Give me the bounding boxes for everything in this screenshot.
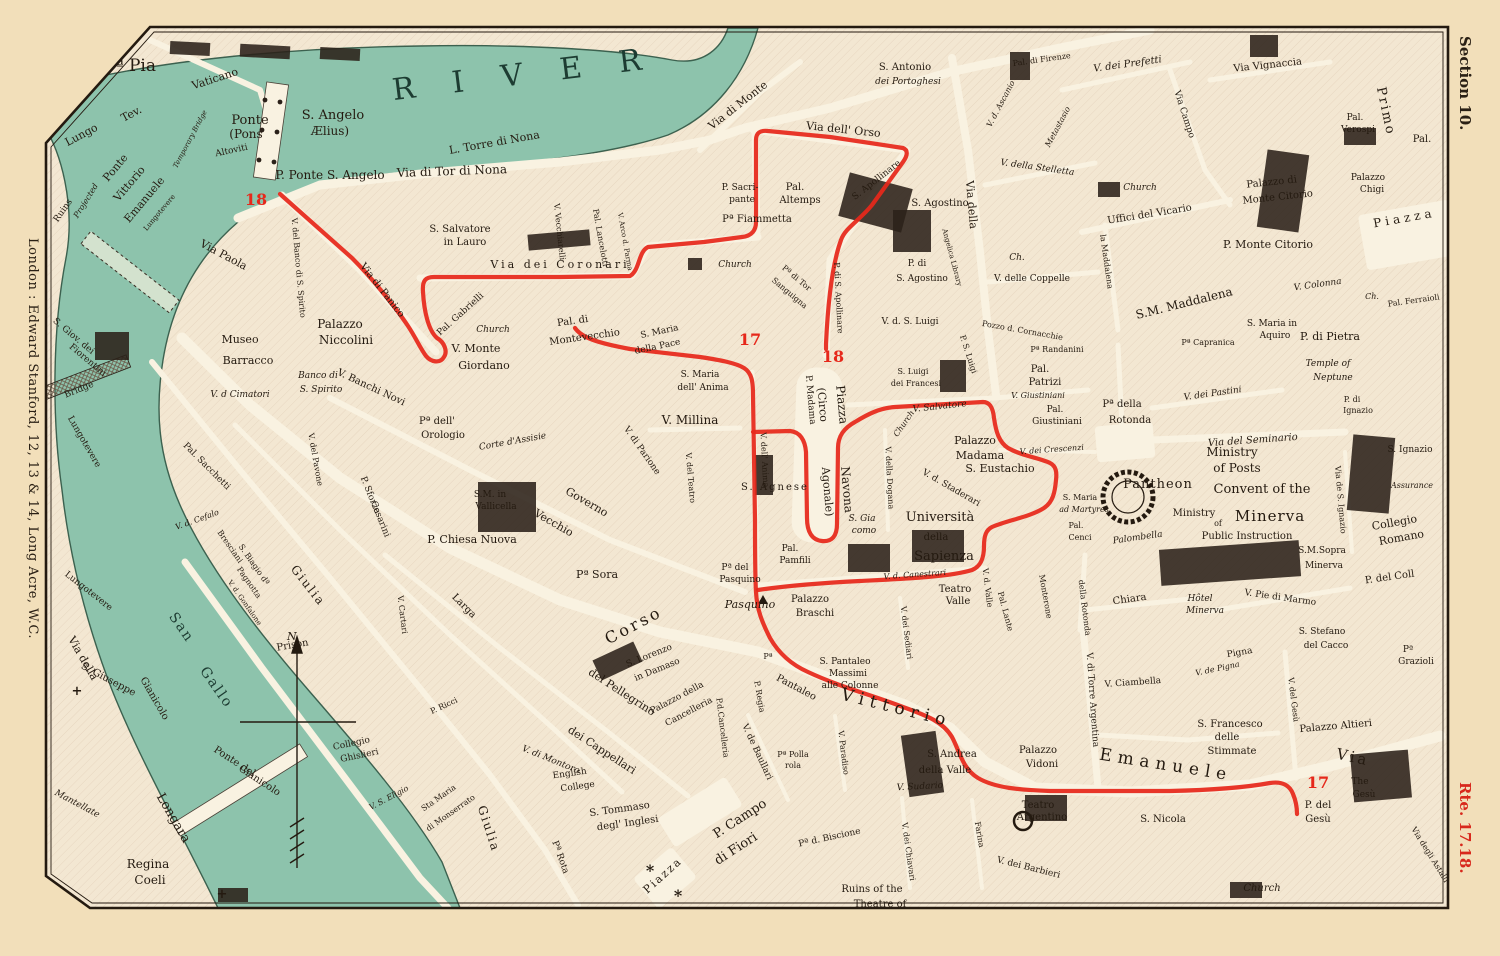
map-label: Ignazio — [1343, 406, 1373, 415]
map-label: Sapienza — [914, 549, 974, 564]
map-label: Banco di — [297, 371, 338, 381]
map-label: P. Sacri- — [722, 183, 759, 193]
map-label: Hôtel — [1186, 593, 1212, 604]
map-label: Ælius) — [310, 124, 349, 138]
map-label: Grazioli — [1398, 657, 1434, 667]
map-label: Ch. — [1365, 292, 1379, 301]
map-label: Patrizi — [1029, 377, 1062, 388]
building-block — [95, 332, 129, 360]
map-label: Ministry — [1173, 508, 1216, 519]
map-label: Church — [1243, 883, 1280, 894]
map-label: in Lauro — [444, 237, 487, 248]
map-label: Pasquino — [719, 575, 760, 585]
map-label: dei Francesi — [891, 379, 942, 388]
route-reference-label: Rte. 17.18. — [1456, 782, 1474, 874]
map-label: Madama — [956, 449, 1005, 462]
street — [650, 428, 740, 430]
map-label: of — [1214, 519, 1223, 528]
map-label: Altemps — [778, 195, 820, 206]
map-label: Church — [1123, 183, 1157, 193]
map-label: Teatro — [1022, 800, 1055, 811]
map-label: V. delle Coppelle — [993, 274, 1070, 284]
map-label: S. Eustachio — [965, 462, 1035, 475]
map-label: Massimi — [829, 669, 867, 679]
map-label: P. di — [908, 259, 927, 269]
map-label: dei Portoghesi — [875, 77, 941, 87]
map-label: Niccolini — [319, 333, 373, 347]
map-label: ad Martyres — [1059, 505, 1109, 514]
map-label: Pª del — [721, 563, 748, 573]
route-number-marker: 18 — [822, 347, 844, 366]
map-label: P. del — [1305, 800, 1332, 811]
map-label: S. Gia — [849, 514, 876, 524]
route-number-marker: 17 — [1307, 773, 1329, 792]
map-label: rola — [785, 761, 801, 770]
map-label: S. Pantaleo — [820, 657, 871, 667]
map-label: Museo — [221, 333, 259, 346]
map-label: Minerva — [1305, 561, 1344, 571]
map-label: S. Maria — [681, 370, 720, 380]
building-block — [940, 360, 966, 392]
map-label: Palazzo — [1019, 745, 1057, 756]
map-label: Pª dell' — [419, 416, 455, 427]
map-label: V. Millina — [661, 413, 719, 427]
map-label: V. Giustiniani — [1011, 391, 1065, 400]
map-label: Coeli — [134, 873, 165, 887]
publisher-imprint: London : Edward Stanford, 12, 13 & 14, L… — [25, 238, 40, 639]
map-label: P. Chiesa Nuova — [427, 533, 517, 546]
map-label: Barracco — [223, 354, 274, 367]
section-number-label: Section 10. — [1456, 36, 1474, 130]
map-label: S. Antonio — [879, 62, 931, 73]
map-label: Teatro — [939, 584, 972, 595]
map-label: della Valle — [919, 765, 972, 776]
building-block — [848, 544, 890, 572]
map-label: Palazzo — [954, 434, 996, 447]
map-label: Ch. — [1009, 253, 1025, 263]
map-label: P. Ponte S. Angelo — [275, 168, 384, 182]
map-label: Pª Fiammetta — [722, 214, 792, 225]
building-block — [320, 47, 361, 61]
rome-city-map: **++N.18171817Pª PiaVaticanoLungoTev.R I… — [0, 0, 1500, 956]
map-label: como — [852, 526, 877, 536]
map-label: Pal. — [1047, 405, 1064, 415]
building-block — [170, 41, 211, 56]
map-label: della — [924, 532, 949, 543]
map-label: Stimmate — [1208, 746, 1257, 757]
map-label: V. Monte — [451, 342, 501, 355]
map-label: Ponte — [231, 113, 269, 128]
map-label: S. Agnese — [741, 482, 809, 493]
map-label: Gesù — [1305, 814, 1331, 825]
symbol-glyph: + — [217, 887, 228, 902]
map-label: Pal. — [786, 182, 805, 193]
map-label: Rotonda — [1109, 415, 1151, 426]
map-label: Pal. — [1347, 113, 1364, 123]
map-label: Convent of the — [1214, 482, 1311, 497]
map-label: Pal. — [1413, 134, 1432, 145]
map-label: Pasquino — [724, 598, 776, 611]
map-label: S. Maria in — [1247, 319, 1297, 329]
map-label: Pª Capranica — [1181, 338, 1235, 347]
map-label: Chigi — [1360, 185, 1384, 195]
map-label: dell' Anima — [677, 383, 729, 393]
map-label: V. d Cimatori — [210, 390, 269, 400]
map-label: Argentino — [1016, 812, 1067, 823]
map-label: S. Salvatore — [429, 224, 490, 235]
map-label: Temple of — [1306, 359, 1352, 369]
map-label: Via dei Coronari — [489, 258, 629, 271]
map-label: (Pons — [229, 127, 262, 141]
map-label: S. Stefano — [1299, 627, 1346, 637]
map-label: Vallicella — [474, 502, 517, 512]
map-label: Assurance — [1390, 481, 1433, 490]
building-block — [893, 210, 931, 252]
building-block — [688, 258, 702, 270]
map-label: Church — [718, 260, 752, 270]
building-block — [1098, 182, 1120, 197]
map-label: Gesù — [1353, 789, 1376, 800]
map-label: Giustiniani — [1032, 417, 1082, 427]
route-number-marker: 17 — [739, 330, 761, 349]
map-label: Palazzo — [317, 317, 363, 331]
map-label: Church — [476, 325, 510, 335]
map-label: S. Ignazio — [1387, 445, 1432, 455]
route-number-marker: 18 — [245, 190, 267, 209]
map-label: Pal. — [1069, 521, 1084, 530]
map-label: V. d. S. Luigi — [881, 317, 939, 327]
map-label: S. Agostino — [911, 198, 968, 209]
map-label: The — [1351, 777, 1368, 787]
map-label: Università — [906, 510, 975, 525]
building-block — [1250, 35, 1278, 57]
map-label: S. Angelo — [302, 108, 365, 123]
map-label: Verospi — [1340, 125, 1375, 135]
map-label: P. di Pietra — [1300, 330, 1360, 343]
map-label: S. Spirito — [300, 385, 343, 395]
map-label: Orologio — [421, 430, 465, 441]
map-label: Pantheon — [1123, 477, 1193, 492]
map-label: Aquiro — [1259, 331, 1291, 341]
map-label: Vidoni — [1025, 759, 1058, 770]
symbol-glyph: + — [72, 684, 83, 699]
map-label: S.M.Sopra — [1298, 546, 1346, 556]
piazza-della-rotonda — [1095, 422, 1156, 463]
map-label: Neptune — [1312, 373, 1353, 383]
map-label: S. Agostino — [896, 274, 948, 284]
map-label: pante — [729, 195, 755, 205]
map-label: Valle — [945, 596, 971, 607]
map-label: Public Instruction — [1202, 531, 1293, 542]
map-label: S. Luigi — [898, 367, 929, 376]
map-label: Pª Randanini — [1030, 345, 1084, 354]
map-label: Ruins of the — [841, 884, 902, 895]
map-label: Pª della — [1102, 399, 1141, 410]
map-label: Giordano — [458, 359, 510, 372]
map-label: Cenci — [1068, 533, 1091, 542]
map-label: Regina — [127, 857, 170, 871]
map-label: Minerva — [1185, 606, 1224, 616]
map-label: Pª Sora — [576, 568, 619, 581]
map-label: Braschi — [796, 608, 834, 619]
map-label: S. Francesco — [1197, 719, 1262, 730]
map-label: Pª — [1403, 645, 1414, 655]
map-label: S.M. in — [474, 490, 507, 500]
map-label: Pª — [763, 652, 772, 661]
symbol-glyph: * — [674, 886, 683, 905]
map-label: P. Monte Citorio — [1223, 238, 1313, 251]
map-area: **++N.18171817Pª PiaVaticanoLungoTev.R I… — [37, 20, 1458, 915]
map-label: Palazzo — [1351, 173, 1385, 183]
building-block — [240, 44, 291, 60]
map-label: del Cacco — [1304, 641, 1349, 651]
map-label: Pal. — [782, 544, 799, 554]
map-label: Minerva — [1235, 507, 1305, 525]
map-label: Pª Polla — [777, 750, 809, 759]
map-label: S. Andrea — [927, 749, 977, 760]
map-label: Palazzo — [791, 594, 829, 605]
map-label: P. di — [1344, 395, 1361, 404]
map-label: S. Maria — [1063, 493, 1098, 502]
map-label: S. Nicola — [1140, 814, 1186, 825]
map-label: Pamfili — [779, 556, 810, 566]
map-sheet: **++N.18171817Pª PiaVaticanoLungoTev.R I… — [0, 0, 1500, 956]
map-label: of Posts — [1213, 461, 1260, 475]
map-label: delle — [1215, 732, 1240, 743]
map-label: Pal. — [1031, 364, 1050, 375]
